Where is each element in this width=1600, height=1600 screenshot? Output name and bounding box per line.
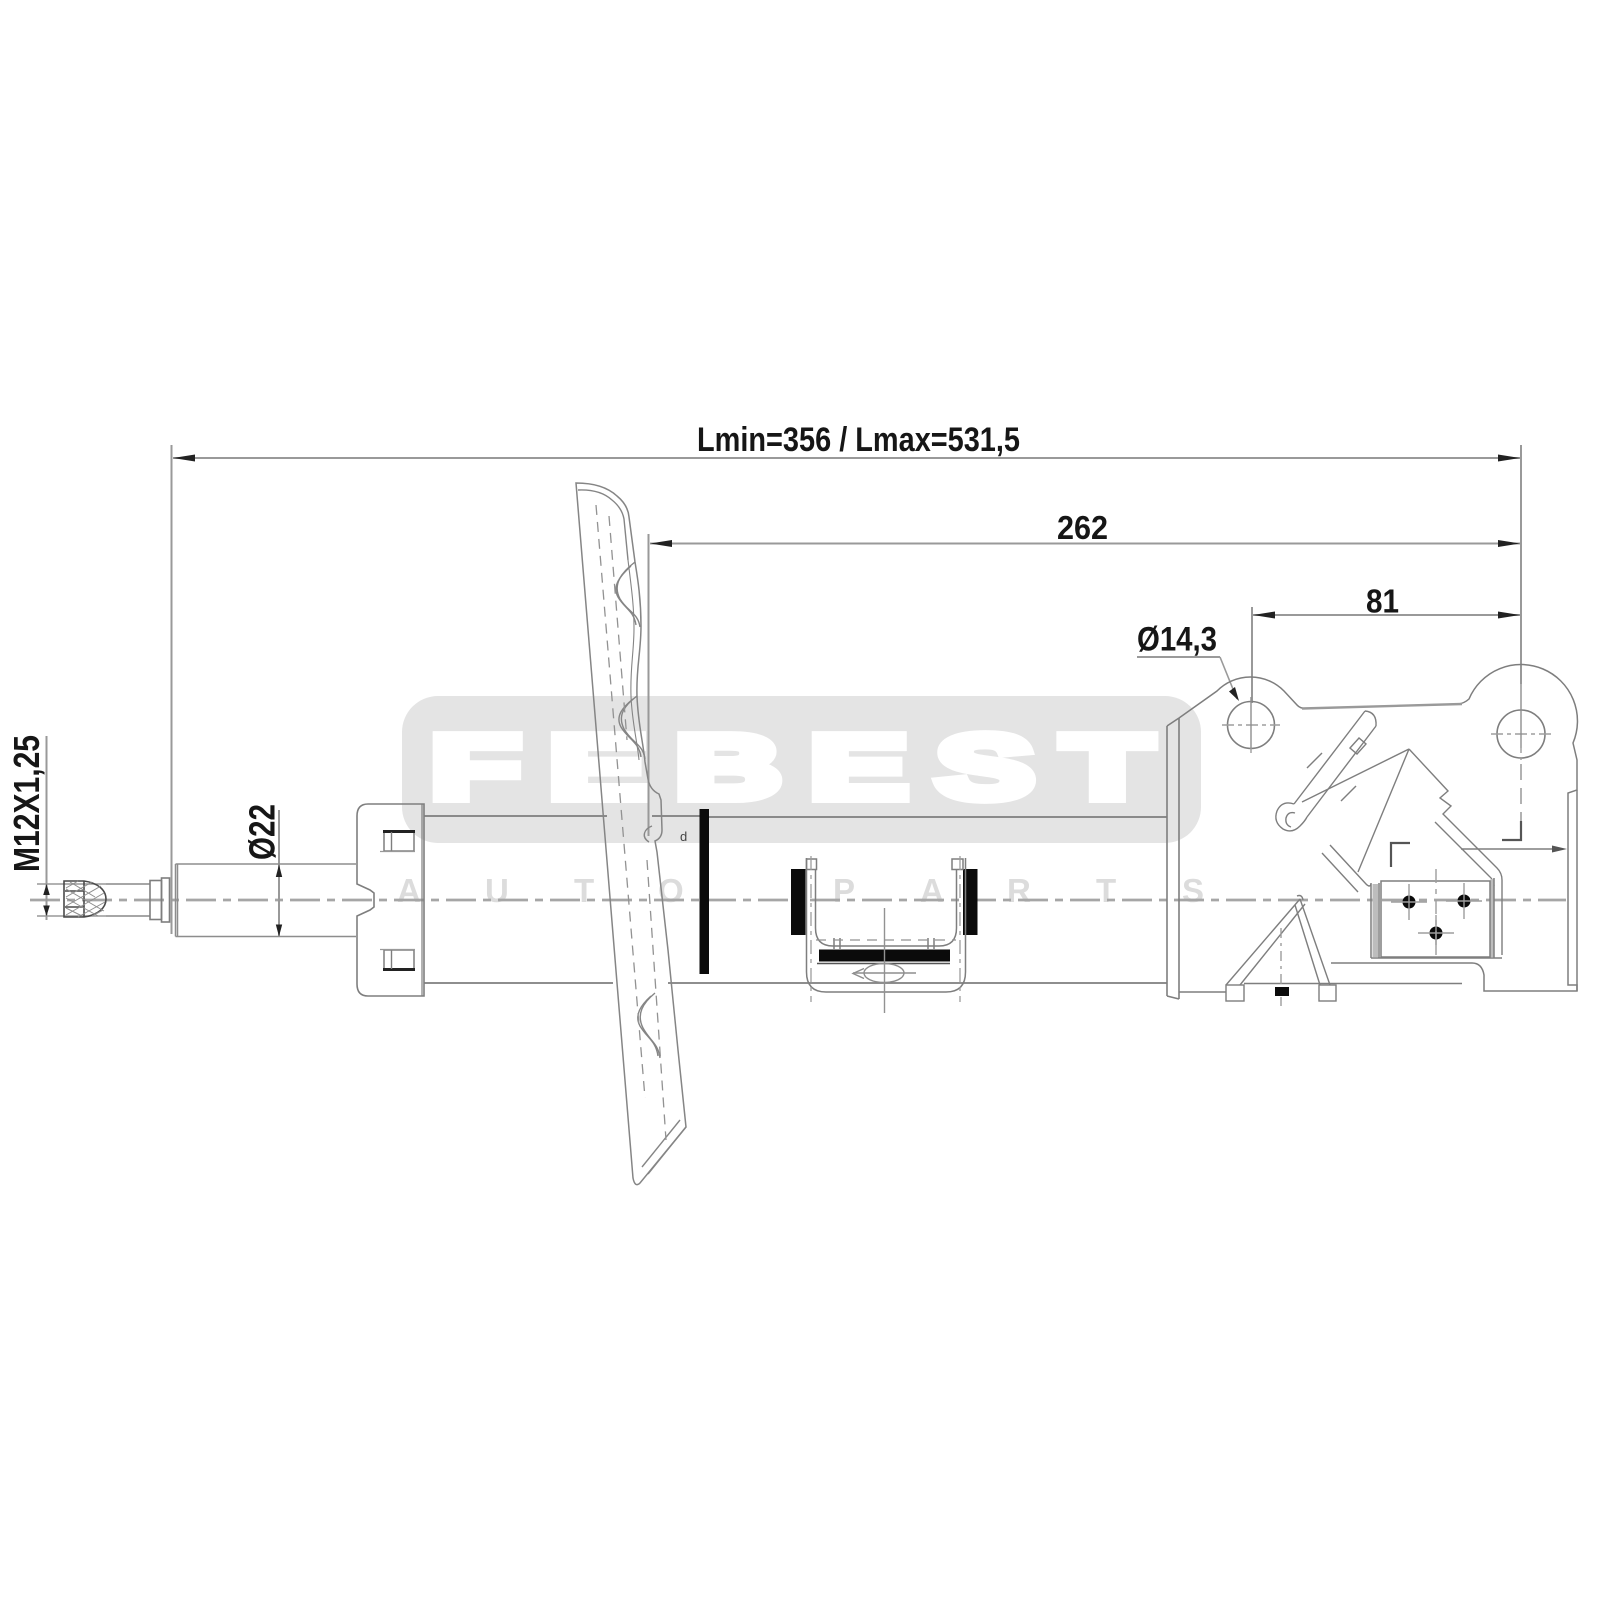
svg-text:Ø14,3: Ø14,3 [1137, 621, 1217, 659]
svg-text:M12X1,25: M12X1,25 [6, 735, 47, 872]
svg-text:A: A [920, 872, 944, 909]
svg-text:Ø22: Ø22 [242, 804, 283, 860]
svg-text:T: T [1096, 872, 1116, 909]
svg-text:R: R [1007, 872, 1031, 909]
svg-text:FEBEST: FEBEST [431, 716, 1181, 817]
svg-text:Lmin=356 / Lmax=531,5: Lmin=356 / Lmax=531,5 [697, 421, 1020, 459]
svg-text:81: 81 [1366, 583, 1399, 620]
svg-text:A: A [397, 872, 421, 909]
svg-text:P: P [833, 872, 855, 909]
svg-text:262: 262 [1057, 509, 1108, 546]
svg-text:d: d [680, 829, 687, 844]
svg-text:U: U [485, 872, 509, 909]
svg-text:S: S [1182, 872, 1204, 909]
svg-text:T: T [574, 872, 594, 909]
